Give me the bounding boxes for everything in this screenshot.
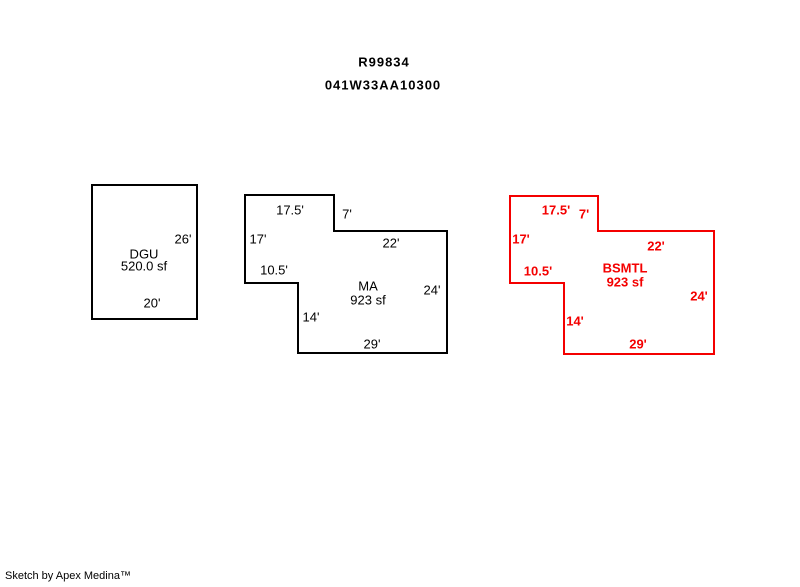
dgu-dim-right-label: 26' — [175, 232, 192, 247]
ma-area-label: 923 sf — [350, 293, 385, 308]
bsmtl-dim-upper-right-label: 22' — [647, 239, 665, 254]
dgu-area-label: 520.0 sf — [121, 259, 167, 274]
sketch-canvas — [0, 0, 800, 587]
bsmtl-dim-left-label: 17' — [512, 232, 530, 247]
ma-dim-step-label: 10.5' — [260, 263, 288, 278]
ma-dim-bottom-label: 29' — [364, 337, 381, 352]
bsmtl-dim-right-label: 24' — [690, 289, 708, 304]
bsmtl-dim-top-label: 17.5' — [542, 203, 570, 218]
bsmtl-dim-step-label: 10.5' — [524, 264, 552, 279]
bsmtl-dim-bottom-label: 29' — [629, 337, 647, 352]
ma-dim-right-label: 24' — [424, 283, 441, 298]
bsmtl-dim-notch-label: 7' — [579, 207, 589, 222]
ma-dim-top-label: 17.5' — [276, 203, 304, 218]
dgu-dim-bottom-label: 20' — [144, 296, 161, 311]
ma-dim-left-label: 17' — [250, 232, 267, 247]
ma-dim-notch-label: 7' — [342, 207, 352, 222]
credit-line: Sketch by Apex Medina™ — [5, 570, 131, 582]
bsmtl-name-label: BSMTL — [603, 261, 648, 276]
ma-dim-upper-right-label: 22' — [383, 236, 400, 251]
bsmtl-dim-lower-left-label: 14' — [566, 314, 584, 329]
ma-dim-lower-left-label: 14' — [303, 310, 320, 325]
bsmtl-area-label: 923 sf — [607, 275, 644, 290]
sketch-page: R99834 041W33AA10300 26' DGU 520.0 sf 20… — [0, 0, 800, 587]
ma-name-label: MA — [358, 279, 378, 294]
